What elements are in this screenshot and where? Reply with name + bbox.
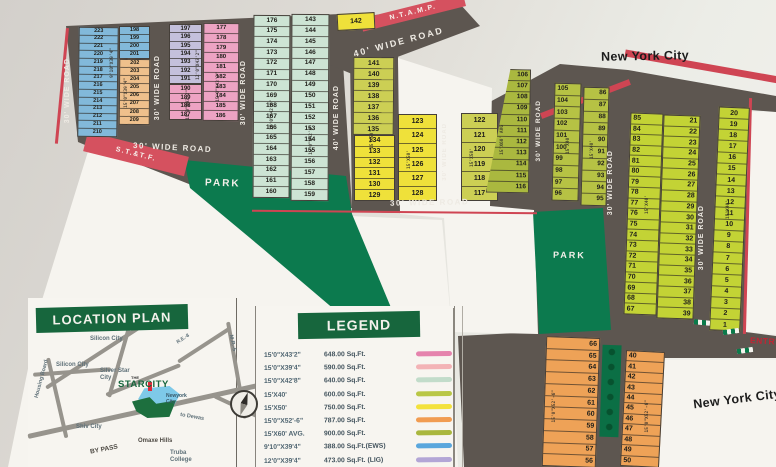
dim-648b: 15'0"X43'2": [186, 90, 191, 120]
plot-165: 165: [254, 134, 289, 145]
plot-120: 120: [462, 143, 497, 158]
plot-126: 126: [399, 158, 436, 172]
legend-swatch: [416, 430, 452, 436]
plot-96: 96: [552, 189, 577, 200]
plot-142-cell: 142: [337, 12, 376, 31]
plot-202: 202: [120, 60, 149, 68]
legend-size: 15'X60' AVG.: [264, 431, 324, 439]
road-label-30-5: 30' WIDE ROAD: [535, 100, 542, 162]
plot-210: 210: [78, 129, 116, 136]
cluster-orange-bottom-right: 4041424344454647484950: [620, 350, 665, 467]
legend-area: 590.00 Sq.Ft.: [324, 364, 416, 372]
road-label-30-7: 30' WIDE ROAD: [698, 205, 705, 270]
plot-198: 198: [120, 27, 149, 35]
plot-150: 150: [292, 91, 328, 102]
plot-125: 125: [399, 144, 436, 158]
dim-640a: 15'0"X42'8": [270, 100, 275, 130]
plot-141: 141: [354, 58, 393, 69]
dim-640b: 15'0"X42'8": [309, 125, 314, 155]
plot-87: 87: [584, 99, 608, 111]
cluster-mint-right: 1431441451461471481491501511521531541551…: [291, 14, 330, 201]
cluster-green-b: 21222324252627282930313233343536373839: [656, 114, 700, 319]
map-label-re8: R.E.-8: [176, 333, 191, 346]
legend-swatch: [416, 417, 452, 423]
dim-600b: 15'X40': [590, 140, 595, 159]
legend-size: 15'0"X39'4": [264, 365, 324, 373]
plot-208: 208: [120, 109, 149, 117]
plot-179: 179: [204, 43, 238, 53]
dim-600d: 15'X40': [726, 200, 731, 219]
legend-swatch: [416, 456, 452, 462]
plot-146: 146: [292, 48, 328, 59]
map-label-bypass: BY PASS: [90, 443, 119, 455]
dim-648a: 15'0"X43'2": [216, 72, 221, 102]
legend-area: 787.00 Sq.Ft.: [324, 416, 416, 424]
road-label-30-6: 30' WIDE ROAD: [607, 150, 614, 215]
plot-138: 138: [354, 91, 393, 102]
plot-200: 200: [120, 43, 149, 51]
paper-fold-line-1: [453, 308, 455, 467]
legend-size: 15'0"X43'2": [264, 351, 324, 359]
plot-98: 98: [553, 166, 578, 178]
legend-size: 15'0"X42'8": [264, 378, 324, 386]
plot-158: 158: [292, 179, 328, 190]
cluster-yellow-left-top: 141140139138137136135: [353, 57, 395, 135]
paper-fold-line-2: [462, 306, 463, 467]
plot-115: 115: [487, 170, 528, 182]
dim-600c: 15'X40': [645, 195, 650, 214]
plot-147: 147: [292, 59, 328, 70]
road-label-30-3: 30' WIDE ROAD: [240, 60, 247, 125]
legend-swatch: [416, 377, 452, 383]
road-label-30-2: 30' WIDE ROAD: [154, 55, 161, 120]
plot-152: 152: [292, 113, 328, 124]
legend-swatch: [416, 443, 452, 449]
plot-89: 89: [583, 123, 607, 135]
plot-106: 106: [489, 70, 530, 82]
dim-lig: 12'0"X43'2": [196, 50, 201, 80]
plot-209: 209: [120, 117, 149, 124]
map-logo-starcity: STARCITY: [118, 379, 169, 390]
dim-787b: 15'0"X52'-6": [645, 400, 650, 433]
legend-swatch: [416, 390, 452, 396]
dim-ews: 9'10"X39'4": [110, 48, 115, 78]
compass-needle-icon: [237, 392, 251, 417]
tree-strip: [599, 345, 621, 438]
plot-116: 116: [487, 182, 528, 193]
plot-161: 161: [254, 176, 289, 187]
dim-750c: 15'X50': [470, 148, 475, 167]
plot-102: 102: [554, 119, 579, 131]
plot-171: 171: [254, 69, 289, 80]
plot-196: 196: [170, 33, 201, 41]
legend-rows: 15'0"X43'2"648.00 Sq.Ft.15'0"X39'4"590.0…: [264, 348, 454, 467]
plot-127: 127: [399, 172, 436, 186]
road-label-30-4: 30' WIDE ROAD: [442, 123, 448, 181]
map-label-shiv-bottom: Shiv City: [76, 424, 102, 430]
cluster-yellow-mid: 123124125126127128: [398, 114, 437, 201]
plot-137: 137: [354, 102, 393, 113]
plot-197: 197: [170, 25, 201, 33]
legend-size: 12'0"X39'4": [264, 457, 324, 465]
plot-136: 136: [354, 113, 393, 124]
plot-180: 180: [204, 53, 238, 63]
plot-176: 176: [254, 16, 289, 27]
plot-163: 163: [254, 155, 289, 166]
plot-95: 95: [581, 194, 605, 205]
plot-142: 142: [338, 13, 375, 30]
plot-93: 93: [582, 170, 606, 182]
plot-56: 56: [543, 454, 595, 467]
plot-149: 149: [292, 81, 328, 92]
site-plan-map: PARK PARK N.T.A.M.P. S.T.&T.F. ENTRY 223…: [0, 0, 776, 467]
plot-173: 173: [254, 48, 289, 59]
plot-164: 164: [254, 144, 289, 155]
plot-144: 144: [292, 26, 328, 37]
plot-97: 97: [553, 177, 578, 189]
map-label-mr5: M.R.-5: [228, 334, 237, 351]
legend-size: 9'10"X39'4": [264, 444, 324, 452]
legend-area: 473.00 Sq.Ft. (LIG): [324, 456, 416, 464]
plot-67: 67: [625, 304, 656, 315]
road-label-30-1: 30' WIDE ROAD: [64, 58, 71, 123]
plot-39: 39: [657, 308, 692, 319]
plot-199: 199: [120, 35, 149, 43]
legend-size: 15'0"X52'-6": [264, 417, 324, 425]
map-road-6: [177, 327, 231, 364]
plot-103: 103: [555, 107, 580, 119]
legend-swatch: [416, 364, 452, 370]
plot-156: 156: [292, 157, 328, 168]
map-label-dewas: to Dewas: [180, 412, 205, 422]
plot-124: 124: [399, 129, 436, 143]
plot-177: 177: [204, 24, 238, 34]
plot-159: 159: [292, 190, 328, 200]
plot-121: 121: [462, 129, 497, 144]
plot-178: 178: [204, 34, 238, 44]
legend-box: LEGEND 15'0"X43'2"648.00 Sq.Ft.15'0"X39'…: [255, 306, 455, 467]
map-label-silicon-left: Silicon City: [56, 362, 89, 368]
plot-99: 99: [553, 154, 578, 166]
dim-600a: 15'X40': [566, 135, 571, 154]
cluster-blue-main: 2232222212202192182172162152142132122112…: [77, 27, 119, 138]
plot-172: 172: [254, 59, 289, 70]
cluster-blue-top: 198199200201: [119, 26, 150, 59]
dim-750a: 15'X50': [370, 130, 375, 149]
legend-area: 600.00 Sq.Ft.: [324, 390, 416, 398]
compass-icon: [230, 390, 258, 418]
plot-50: 50: [621, 455, 658, 466]
legend-header: LEGEND: [298, 311, 420, 339]
plot-132: 132: [355, 158, 394, 169]
legend-row: 15'0"X42'8"640.00 Sq.Ft.: [264, 373, 454, 388]
plot-92: 92: [582, 158, 606, 170]
park-left-label: PARK: [205, 177, 241, 189]
map-label-silicon-mid: Silicon City: [90, 336, 123, 342]
map-label-omaxe: Omaxe Hills: [138, 438, 172, 444]
plot-90: 90: [583, 135, 607, 147]
dim-590: 15'0"X39'4": [124, 78, 129, 108]
plot-86: 86: [584, 88, 608, 100]
legend-area: 750.00 Sq.Ft.: [324, 403, 416, 411]
road-label-30-h2: 30' WIDE ROAD: [390, 197, 469, 207]
plot-185: 185: [204, 101, 238, 111]
legend-swatch: [416, 404, 452, 410]
dim-750b: 15'X50': [407, 150, 412, 169]
city-label-top: New York City: [601, 48, 689, 64]
plot-131: 131: [355, 168, 394, 179]
legend-size: 15'X40': [264, 391, 324, 399]
plot-123: 123: [399, 115, 436, 129]
park-right-label: PARK: [553, 250, 586, 261]
map-label-newyork: Newyork City: [166, 394, 194, 405]
map-label-truba: Truba College: [170, 450, 204, 463]
road-label-40-v: 40' WIDE ROAD: [333, 85, 340, 150]
plot-139: 139: [354, 80, 393, 91]
plot-157: 157: [292, 168, 328, 179]
plot-140: 140: [354, 69, 393, 80]
plot-186: 186: [204, 111, 238, 120]
legend-area: 900.00 Sq.Ft.: [324, 430, 416, 438]
legend-row: 9'10"X39'4"388.00 Sq.Ft.(EWS): [264, 439, 454, 454]
entry-label: ENTRY: [750, 335, 776, 347]
plot-160: 160: [254, 187, 289, 197]
legend-row: 12'0"X39'4"473.00 Sq.Ft. (LIG): [264, 453, 454, 467]
legend-area: 640.00 Sq.Ft.: [324, 377, 416, 385]
location-plan-header: LOCATION PLAN: [36, 304, 189, 333]
plot-88: 88: [584, 111, 608, 123]
plot-151: 151: [292, 102, 328, 113]
legend-size: 15'X50': [264, 404, 324, 412]
plot-130: 130: [355, 179, 394, 190]
plot-145: 145: [292, 37, 328, 48]
plot-107: 107: [489, 81, 530, 93]
cluster-pink-right: 177178179180181182183184185186: [203, 23, 240, 121]
plot-170: 170: [254, 80, 289, 91]
map-label-housing-board: Housing Board: [34, 359, 50, 399]
plot-201: 201: [120, 51, 149, 58]
location-plan-box: LOCATION PLAN Shiv City Silicon City Sil…: [28, 298, 237, 467]
plot-104: 104: [555, 95, 580, 107]
plot-114: 114: [487, 159, 528, 171]
plot-143: 143: [292, 15, 328, 26]
plot-129: 129: [355, 190, 394, 200]
legend-area: 388.00 Sq.Ft.(EWS): [324, 443, 416, 451]
plot-148: 148: [292, 70, 328, 81]
plot-174: 174: [254, 37, 289, 48]
legend-swatch: [416, 351, 452, 357]
plot-94: 94: [582, 182, 606, 194]
cluster-orange-bottom-left: 6665646362616059585756: [542, 336, 601, 467]
legend-area: 648.00 Sq.Ft.: [324, 350, 416, 358]
plot-122: 122: [462, 114, 497, 129]
cluster-olive-right: 86878889909192939495: [580, 87, 609, 207]
plot-175: 175: [254, 27, 289, 38]
plot-162: 162: [254, 166, 289, 177]
plot-105: 105: [555, 84, 580, 96]
dim-900: 15'X60' AVG: [500, 125, 505, 155]
plot-181: 181: [204, 63, 238, 73]
dim-787a: 15'0"X52'-6": [552, 390, 557, 423]
